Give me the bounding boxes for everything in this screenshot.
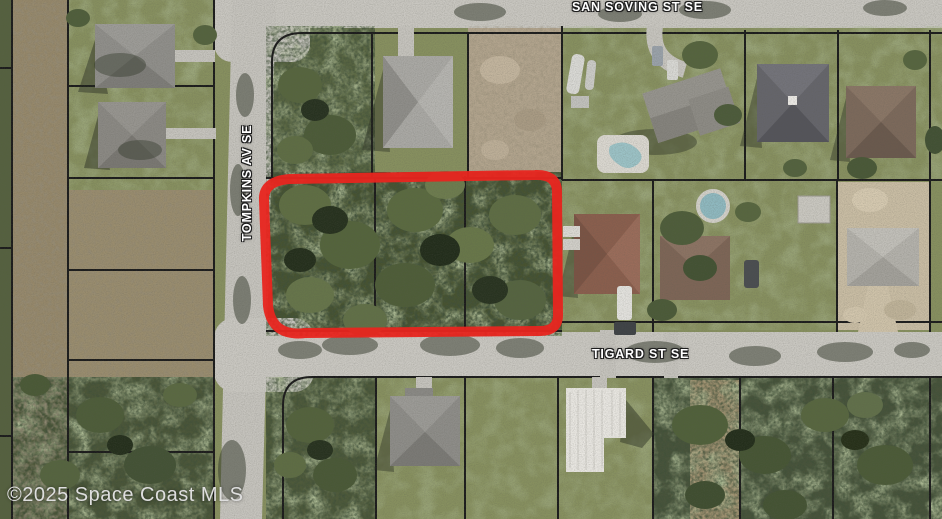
map-grain [0,0,942,519]
watermark: ©2025 Space Coast MLS [7,484,243,507]
map-image [0,0,942,519]
aerial-map: SAN SOVING ST SE TOMPKINS AV SE TIGARD S… [0,0,942,519]
street-label-tigard: TIGARD ST SE [592,347,689,361]
street-label-san-soving: SAN SOVING ST SE [572,0,703,14]
street-label-tompkins: TOMPKINS AV SE [240,125,254,242]
